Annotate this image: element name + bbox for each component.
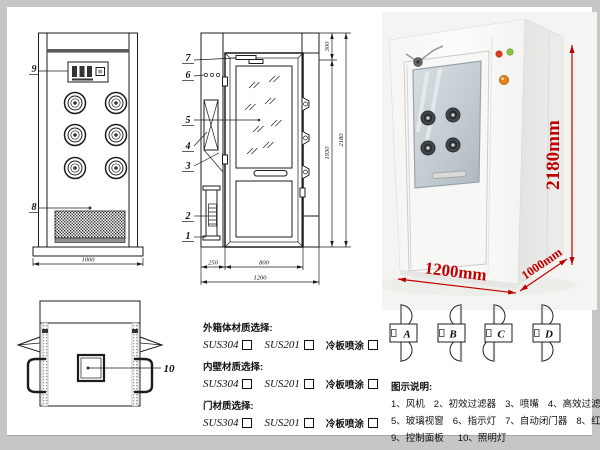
legend-item: 3、喷嘴	[505, 396, 539, 410]
option-label: 冷板喷涂	[326, 416, 364, 430]
width-dimensions: 250 800 1200	[201, 247, 319, 285]
legend-title: 图示说明:	[391, 379, 600, 393]
door-option-c-label: C	[497, 329, 505, 341]
round-button[interactable]	[499, 75, 508, 84]
callout-9-label: 9	[32, 64, 37, 75]
callout-5-label: 5	[186, 115, 191, 126]
legend-item: 9、控制面板	[391, 430, 444, 444]
dim-2180: 2180	[338, 133, 345, 147]
option-label: SUS201	[264, 417, 299, 429]
material-group-door: 门材质选择: SUS304 SUS201 冷板喷涂	[203, 398, 389, 430]
checkbox-inner-coldplate[interactable]	[368, 379, 378, 389]
option-label: SUS304	[203, 378, 238, 390]
callout-4-label: 4	[185, 141, 191, 152]
callout-6-label: 6	[186, 70, 191, 81]
grille	[55, 211, 125, 243]
top-view-drawing: 10	[15, 288, 195, 438]
height-dimensions: 300 1930 2180	[319, 33, 351, 247]
option-label: SUS304	[203, 339, 238, 351]
dim-1200: 1200	[254, 275, 268, 282]
checkbox-door-coldplate[interactable]	[368, 418, 378, 428]
option-label: SUS201	[264, 378, 299, 390]
interior-nozzle-icon	[421, 111, 435, 125]
callout-10-label: 10	[164, 363, 176, 375]
door-option-d-label: D	[544, 329, 553, 341]
option-label: 冷板喷涂	[326, 338, 364, 352]
checkbox-outer-coldplate[interactable]	[368, 340, 378, 350]
width-dimension: 1000	[33, 257, 143, 267]
material-selection: 外箱体材质选择: SUS304 SUS201 冷板喷涂 内壁材质选择: SUS3…	[203, 317, 389, 437]
callout-3-label: 3	[185, 161, 191, 172]
dim-1930: 1930	[324, 146, 331, 160]
callout-8-label: 8	[32, 202, 37, 213]
checkbox-door-sus304[interactable]	[242, 418, 252, 428]
spec-sheet: 9 8 1000	[0, 0, 600, 450]
door-option-b-label: B	[448, 329, 456, 341]
door-closer-icon	[236, 56, 256, 60]
front-view-drawing: 9 8 1000	[28, 20, 163, 270]
nozzle-icon	[65, 93, 86, 114]
nozzle-icon	[65, 125, 86, 146]
material-group-inner: 内壁材质选择: SUS304 SUS201 冷板喷涂	[203, 359, 389, 391]
door-option-a-label: A	[402, 329, 410, 341]
checkbox-outer-sus304[interactable]	[242, 340, 252, 350]
door-option-b: B	[438, 304, 465, 362]
legend-item: 7、自动闭门器	[505, 413, 567, 427]
product-photo: 2180mm 1200mm 1000mm	[382, 12, 597, 310]
legend-item: 6、指示灯	[453, 413, 496, 427]
option-label: 冷板喷涂	[326, 377, 364, 391]
glass-door[interactable]	[404, 51, 489, 271]
green-light-icon	[507, 49, 513, 55]
legend-row: 5、玻璃视窗 6、指示灯 7、自动闭门器 8、红外线感应器	[391, 413, 600, 427]
door-option-c: C	[483, 304, 512, 362]
checkbox-outer-sus201[interactable]	[304, 340, 314, 350]
interior-nozzle-icon	[446, 138, 460, 152]
callout-2-label: 2	[185, 211, 191, 222]
latch-icon	[300, 188, 305, 197]
checkbox-inner-sus304[interactable]	[242, 379, 252, 389]
legend-row: 9、控制面板 10、照明灯	[391, 430, 600, 444]
fan-duct	[203, 186, 220, 240]
material-group-title: 外箱体材质选择:	[203, 320, 389, 334]
interior-nozzle-icon	[446, 108, 460, 122]
legend-item: 5、玻璃视窗	[391, 413, 444, 427]
legend-item: 1、风机	[391, 396, 425, 410]
door-option-d: D	[533, 304, 560, 362]
option-label: SUS304	[203, 417, 238, 429]
base-plinth	[33, 247, 143, 256]
top-band	[47, 49, 129, 53]
checkbox-door-sus201[interactable]	[304, 418, 314, 428]
control-panel	[68, 62, 108, 82]
callout-1-label: 1	[186, 231, 191, 242]
red-light-icon	[496, 51, 502, 57]
nozzle-icon	[65, 158, 86, 179]
dim-800: 800	[259, 260, 270, 267]
interior-nozzle-icon	[421, 141, 435, 155]
side-view-drawing: 7 6 5 4 3 2 1 300 1930 2180 250 800	[179, 20, 371, 292]
callout-7-label: 7	[186, 53, 192, 64]
legend-row: 1、风机 2、初效过滤器 3、喷嘴 4、高效过滤器	[391, 396, 600, 410]
legend-item: 4、高效过滤器	[548, 396, 600, 410]
nozzle-icon	[106, 125, 127, 146]
nozzle-icon	[106, 93, 127, 114]
nozzle-icon	[106, 158, 127, 179]
parts-legend: 图示说明: 1、风机 2、初效过滤器 3、喷嘴 4、高效过滤器 5、玻璃视窗 6…	[391, 379, 600, 447]
legend-item: 8、红外线感应器	[576, 413, 600, 427]
legend-item: 10、照明灯	[458, 430, 507, 444]
material-group-title: 内壁材质选择:	[203, 359, 389, 373]
dim-1000: 1000	[82, 257, 96, 264]
door-swing-options: A B C D	[384, 298, 569, 370]
hinge-icon	[223, 77, 228, 86]
material-group-title: 门材质选择:	[203, 398, 389, 412]
door-option-a: A	[390, 304, 417, 362]
photo-height-dim: 2180mm	[543, 120, 564, 190]
legend-item: 2、初效过滤器	[434, 396, 496, 410]
dim-300: 300	[324, 41, 331, 53]
dim-250: 250	[208, 260, 219, 267]
option-label: SUS201	[264, 339, 299, 351]
checkbox-inner-sus201[interactable]	[304, 379, 314, 389]
drawing-canvas: 9 8 1000	[7, 7, 592, 436]
hinge-icon	[223, 155, 228, 164]
material-group-outer: 外箱体材质选择: SUS304 SUS201 冷板喷涂	[203, 320, 389, 352]
